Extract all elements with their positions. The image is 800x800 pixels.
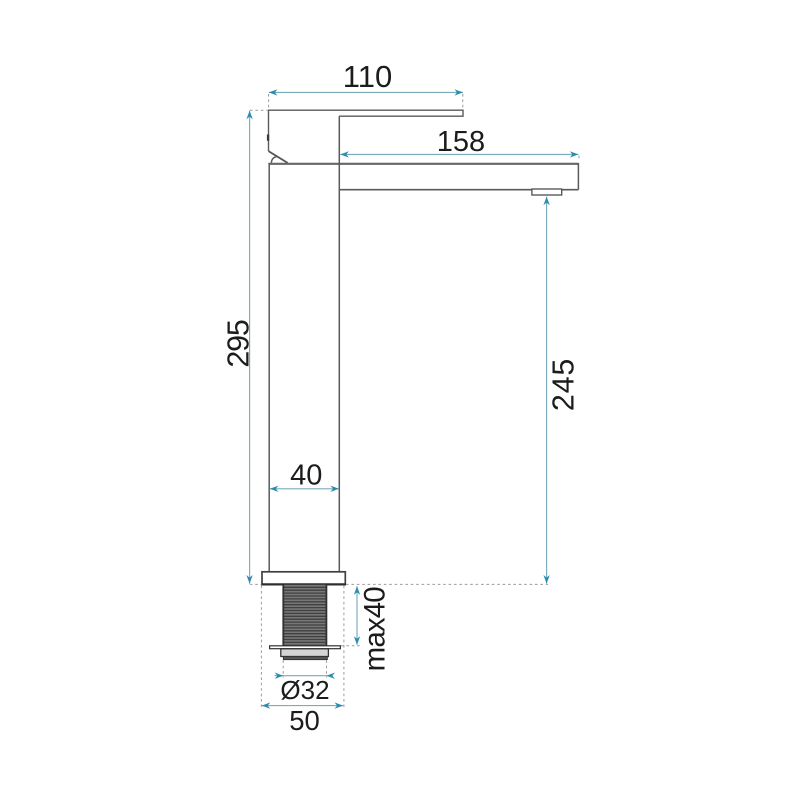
svg-text:245: 245 (547, 358, 581, 411)
svg-text:158: 158 (437, 126, 485, 158)
svg-text:50: 50 (289, 705, 320, 736)
svg-text:110: 110 (343, 59, 392, 94)
svg-text:Ø32: Ø32 (280, 675, 329, 705)
svg-text:295: 295 (221, 320, 255, 368)
svg-text:40: 40 (290, 460, 322, 492)
svg-text:max40: max40 (359, 587, 392, 672)
